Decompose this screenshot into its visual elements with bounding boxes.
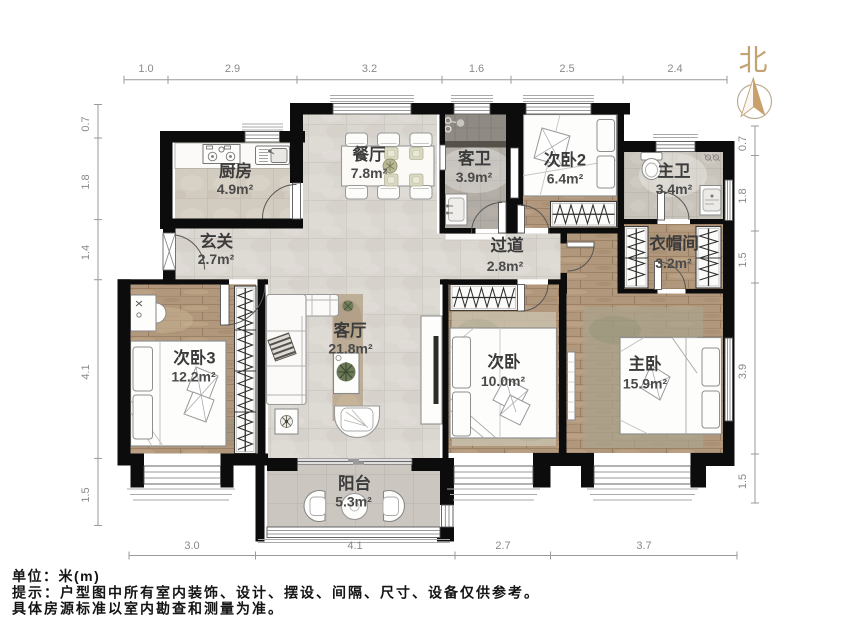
svg-text:4.1: 4.1 [347,540,362,552]
svg-text:餐厅: 餐厅 [353,144,387,164]
svg-text:1.6: 1.6 [469,63,484,75]
svg-text:3.7: 3.7 [636,540,651,552]
svg-text:5.3m²: 5.3m² [335,494,372,510]
svg-text:次卧: 次卧 [488,352,522,372]
svg-text:3.4m²: 3.4m² [656,181,693,197]
svg-text:北: 北 [738,45,767,77]
svg-text:次卧2: 次卧2 [544,150,586,170]
svg-text:4.1: 4.1 [80,364,92,379]
svg-text:具体房源标准以室内勘查和测量为准。: 具体房源标准以室内勘查和测量为准。 [11,601,284,617]
svg-text:10.0m²: 10.0m² [481,373,526,389]
svg-text:1.8: 1.8 [737,188,749,203]
svg-text:0.7: 0.7 [80,116,92,131]
svg-text:2.5: 2.5 [559,63,574,75]
svg-text:2.9: 2.9 [225,63,240,75]
svg-text:3.2m²: 3.2m² [655,255,692,271]
svg-text:提示：户型图中所有室内装饰、设计、摆设、间隔、尺寸、设备仅供: 提示：户型图中所有室内装饰、设计、摆设、间隔、尺寸、设备仅供参考。 [12,585,540,601]
svg-text:过道: 过道 [491,235,525,255]
svg-text:主卧: 主卧 [629,354,663,374]
svg-text:4.9m²: 4.9m² [217,181,254,197]
svg-text:阳台: 阳台 [338,473,371,493]
svg-text:2.4: 2.4 [667,63,682,75]
svg-text:2.8m²: 2.8m² [487,258,524,274]
svg-text:2.7m²: 2.7m² [198,251,235,267]
svg-text:12.2m²: 12.2m² [171,369,216,385]
svg-text:0.7: 0.7 [737,136,749,151]
svg-text:客厅: 客厅 [333,320,368,340]
svg-text:21.8m²: 21.8m² [328,341,373,357]
svg-text:客卫: 客卫 [457,148,491,168]
svg-text:3.0: 3.0 [184,540,199,552]
svg-text:1.0: 1.0 [138,63,153,75]
svg-text:1.4: 1.4 [80,245,92,260]
svg-text:厨房: 厨房 [219,161,252,181]
svg-text:3.9m²: 3.9m² [456,169,493,185]
svg-text:1.5: 1.5 [80,487,92,502]
svg-text:主卫: 主卫 [658,161,691,181]
svg-text:15.9m²: 15.9m² [623,376,668,392]
svg-text:3.9: 3.9 [737,364,749,379]
svg-text:单位：米(m): 单位：米(m) [12,568,100,584]
svg-text:衣帽间: 衣帽间 [649,233,699,253]
svg-text:3.2: 3.2 [362,63,377,75]
svg-text:6.4m²: 6.4m² [547,171,584,187]
svg-text:1.5: 1.5 [737,252,749,267]
svg-text:7.8m²: 7.8m² [351,165,388,181]
svg-text:1.5: 1.5 [737,474,749,489]
svg-text:2.7: 2.7 [495,540,510,552]
svg-text:玄关: 玄关 [200,231,234,251]
svg-text:1.8: 1.8 [80,174,92,189]
svg-text:次卧3: 次卧3 [173,348,215,368]
